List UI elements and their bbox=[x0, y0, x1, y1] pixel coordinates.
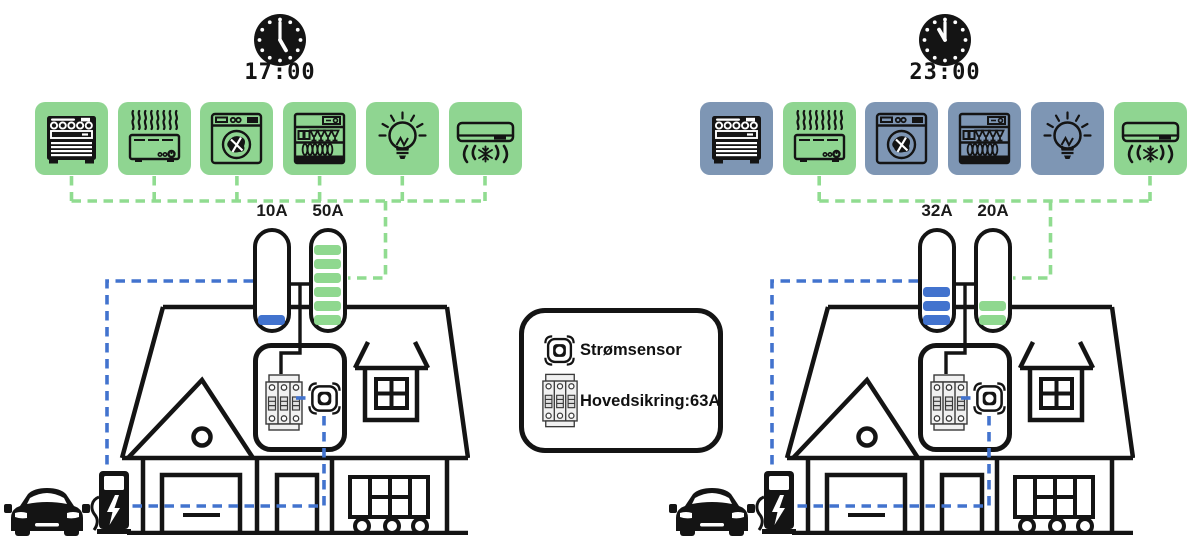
appliance-tile-heater bbox=[118, 102, 191, 175]
gauge-segment bbox=[923, 301, 950, 312]
stove-icon bbox=[35, 102, 108, 175]
appliance-tile-air-conditioner bbox=[1114, 102, 1187, 175]
current-sensor-icon bbox=[308, 382, 341, 415]
gauge-0-label: 32A bbox=[909, 201, 965, 221]
fuse-box bbox=[253, 343, 347, 452]
legend-main-fuse-label: Hovedsikring:63A bbox=[580, 392, 720, 411]
appliance-tile-washing-machine bbox=[865, 102, 938, 175]
heater-icon bbox=[783, 102, 856, 175]
appliance-tile-light-bulb bbox=[366, 102, 439, 175]
dishwasher-icon bbox=[283, 102, 356, 175]
diagram-canvas: 10A 50A 17:00 32A 20A bbox=[0, 0, 1192, 549]
ev-car-icon bbox=[4, 484, 90, 536]
gauge-segment bbox=[923, 287, 950, 298]
legend-sensor-label: Strømsensor bbox=[580, 341, 682, 360]
gauge-1-label: 50A bbox=[300, 201, 356, 221]
time-label: 23:00 bbox=[895, 60, 995, 85]
time-label: 17:00 bbox=[230, 60, 330, 85]
wires-dynamic bbox=[72, 176, 486, 201]
gauge-segment bbox=[314, 245, 341, 256]
ev-charger-icon bbox=[86, 467, 132, 537]
ev-charger-icon bbox=[751, 467, 797, 537]
stove-icon bbox=[700, 102, 773, 175]
light-bulb-icon bbox=[1031, 102, 1104, 175]
current-sensor-icon bbox=[973, 382, 1006, 415]
washing-machine-icon bbox=[200, 102, 273, 175]
gauge-1 bbox=[974, 228, 1012, 333]
gauge-segment bbox=[314, 301, 341, 312]
gauge-1-label: 20A bbox=[965, 201, 1021, 221]
fuse-box bbox=[918, 343, 1012, 452]
gauge-segment bbox=[314, 287, 341, 298]
gauge-segment bbox=[979, 301, 1006, 312]
gauge-segment bbox=[258, 315, 285, 326]
current-sensor-icon bbox=[544, 335, 575, 366]
legend-box: Strømsensor Hovedsikring:63A bbox=[519, 308, 723, 453]
appliance-tile-stove bbox=[35, 102, 108, 175]
gauge-segment bbox=[314, 259, 341, 270]
gauge-segment bbox=[314, 315, 341, 326]
scenario-2300: 32A 20A 23:00 bbox=[665, 0, 1192, 549]
air-conditioner-icon bbox=[449, 102, 522, 175]
gauge-segment bbox=[923, 315, 950, 326]
appliance-tile-air-conditioner bbox=[449, 102, 522, 175]
appliance-tile-stove bbox=[700, 102, 773, 175]
gauge-0 bbox=[918, 228, 956, 333]
gauge-segment bbox=[979, 315, 1006, 326]
gauge-0 bbox=[253, 228, 291, 333]
gauge-0-label: 10A bbox=[244, 201, 300, 221]
main-fuse-icon bbox=[264, 374, 304, 432]
appliance-tile-light-bulb bbox=[1031, 102, 1104, 175]
main-fuse-icon bbox=[541, 373, 579, 429]
appliance-tile-heater bbox=[783, 102, 856, 175]
main-fuse-icon bbox=[929, 374, 969, 432]
appliance-tile-washing-machine bbox=[200, 102, 273, 175]
scenario-1700: 10A 50A 17:00 bbox=[0, 0, 527, 549]
appliance-tile-dishwasher bbox=[948, 102, 1021, 175]
wires-dynamic bbox=[819, 176, 1150, 201]
appliance-tile-dishwasher bbox=[283, 102, 356, 175]
light-bulb-icon bbox=[366, 102, 439, 175]
gauge-segment bbox=[314, 273, 341, 284]
dishwasher-icon bbox=[948, 102, 1021, 175]
ev-car-icon bbox=[669, 484, 755, 536]
gauge-1 bbox=[309, 228, 347, 333]
air-conditioner-icon bbox=[1114, 102, 1187, 175]
washing-machine-icon bbox=[865, 102, 938, 175]
heater-icon bbox=[118, 102, 191, 175]
